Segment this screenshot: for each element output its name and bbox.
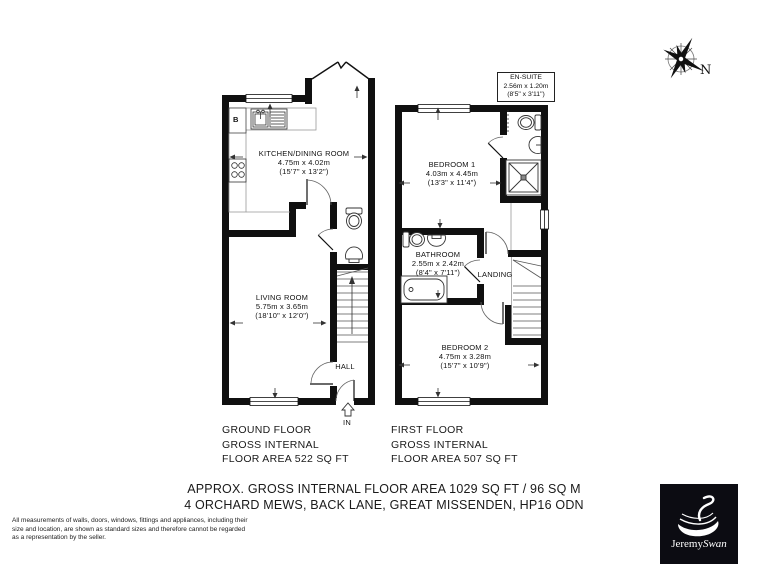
agency-logo: JeremySwan: [660, 484, 738, 564]
room-metric: 2.55m x 2.42m: [398, 259, 478, 268]
disclaimer-text: All measurements of walls, doors, window…: [12, 517, 250, 543]
ensuite-toilet-icon: [518, 115, 541, 130]
room-metric: 4.75m x 4.02m: [244, 158, 364, 167]
room-name: LIVING ROOM: [222, 293, 342, 302]
wc-toilet-icon: [346, 208, 362, 229]
caption-line: FLOOR AREA 507 SQ FT: [391, 452, 518, 467]
room-name: BEDROOM 1: [392, 160, 512, 169]
boiler-label: B: [233, 115, 238, 124]
caption-line: FLOOR AREA 522 SQ FT: [222, 452, 349, 467]
caption-line: GROUND FLOOR: [222, 423, 349, 438]
ensuite-door: [488, 137, 503, 158]
bath-icon: [401, 276, 447, 303]
room-name: BATHROOM: [398, 250, 478, 259]
swan-logo-icon: [660, 484, 738, 540]
bedroom1-door: [486, 232, 508, 254]
wc-door: [318, 229, 333, 250]
kitchen-door: [307, 179, 331, 205]
bathroom-label: BATHROOM 2.55m x 2.42m (8'4" x 7'11"): [398, 250, 478, 277]
room-metric: 4.03m x 4.45m: [392, 169, 512, 178]
boiler-letter: B: [233, 115, 238, 124]
agency-name: JeremySwan: [671, 538, 727, 550]
bedroom2-door: [481, 302, 503, 324]
first-floor-caption: FIRST FLOOR GROSS INTERNAL FLOOR AREA 50…: [391, 423, 518, 467]
compass-north-label: N: [700, 63, 711, 78]
caption-line: GROSS INTERNAL: [222, 438, 349, 453]
bathroom-toilet-icon: [403, 232, 425, 247]
brand-italic: Swan: [703, 538, 727, 550]
room-imperial: (18'10" x 12'0"): [222, 311, 342, 320]
address-line: 4 ORCHARD MEWS, BACK LANE, GREAT MISSEND…: [99, 497, 669, 513]
ensuite-label: EN-SUITE 2.56m x 1.20m (8'5" x 3'11"): [497, 72, 555, 102]
room-metric: 4.75m x 3.28m: [405, 352, 525, 361]
room-imperial: (8'5" x 3'11"): [498, 91, 554, 100]
ground-dimension-arrows: [230, 86, 368, 399]
hall-label: HALL: [325, 362, 365, 371]
room-metric: 2.56m x 1.20m: [498, 83, 554, 92]
brand-regular: Jeremy: [671, 538, 703, 550]
room-name: KITCHEN/DINING ROOM: [244, 149, 364, 158]
patio-doors: [312, 62, 369, 79]
floorplan-page: KITCHEN/DINING ROOM 4.75m x 4.02m (15'7"…: [0, 0, 768, 576]
room-name: LANDING: [468, 270, 522, 279]
living-room-label: LIVING ROOM 5.75m x 3.65m (18'10" x 12'0…: [222, 293, 342, 320]
room-imperial: (8'4" x 7'11"): [398, 268, 478, 277]
bedroom1-label: BEDROOM 1 4.03m x 4.45m (13'3" x 11'4"): [392, 160, 512, 187]
room-metric: 5.75m x 3.65m: [222, 302, 342, 311]
landing-label: LANDING: [468, 270, 522, 279]
wc-sink-icon: [346, 247, 363, 263]
footer-summary: APPROX. GROSS INTERNAL FLOOR AREA 1029 S…: [99, 481, 669, 513]
ground-floor-caption: GROUND FLOOR GROSS INTERNAL FLOOR AREA 5…: [222, 423, 349, 467]
front-door-opening: [336, 398, 354, 405]
room-imperial: (15'7" x 10'9"): [405, 361, 525, 370]
room-imperial: (13'3" x 11'4"): [392, 178, 512, 187]
front-door: [336, 380, 354, 401]
room-name: HALL: [325, 362, 365, 371]
gross-area-line: APPROX. GROSS INTERNAL FLOOR AREA 1029 S…: [99, 481, 669, 497]
room-name: BEDROOM 2: [405, 343, 525, 352]
bathroom-sink-icon: [428, 235, 446, 246]
caption-line: GROSS INTERNAL: [391, 438, 518, 453]
room-name: EN-SUITE: [498, 74, 554, 83]
compass-rose-icon: [663, 38, 704, 79]
ground-floor-windows: [246, 95, 298, 406]
kitchen-sink-icon: [251, 109, 287, 129]
room-imperial: (15'7" x 13'2"): [244, 167, 364, 176]
ensuite-sink-icon: [529, 137, 541, 154]
kitchen-label: KITCHEN/DINING ROOM 4.75m x 4.02m (15'7"…: [244, 149, 364, 176]
caption-line: FIRST FLOOR: [391, 423, 518, 438]
bedroom2-label: BEDROOM 2 4.75m x 3.28m (15'7" x 10'9"): [405, 343, 525, 370]
